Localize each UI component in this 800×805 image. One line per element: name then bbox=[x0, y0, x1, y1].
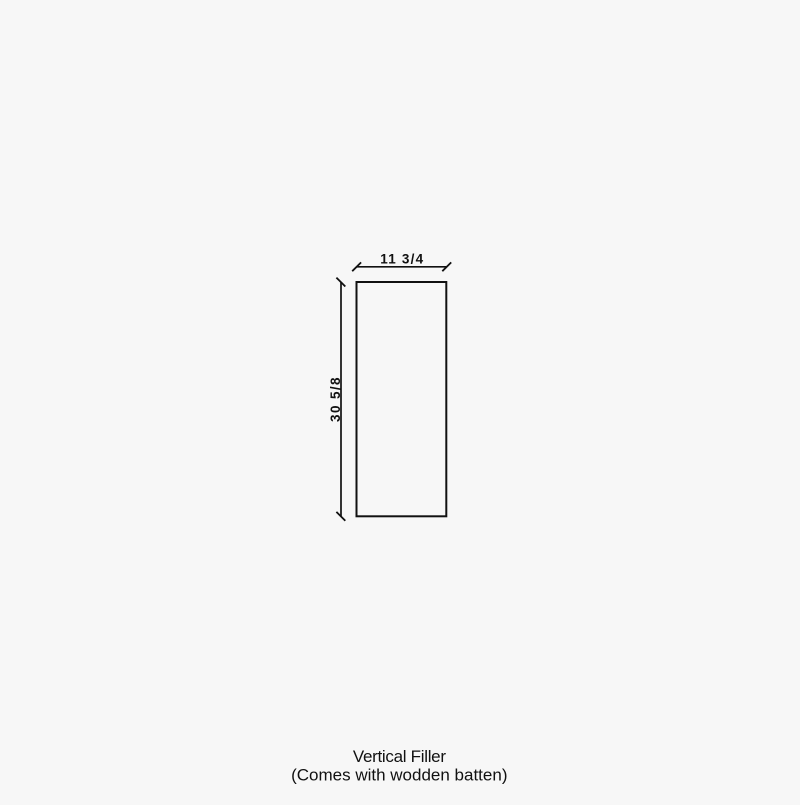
svg-text:(Comes with wodden batten): (Comes with wodden batten) bbox=[291, 766, 507, 785]
svg-text:30 5/8: 30 5/8 bbox=[328, 376, 343, 422]
svg-text:11 3/4: 11 3/4 bbox=[380, 252, 424, 267]
svg-text:Vertical Filler: Vertical Filler bbox=[353, 747, 446, 766]
